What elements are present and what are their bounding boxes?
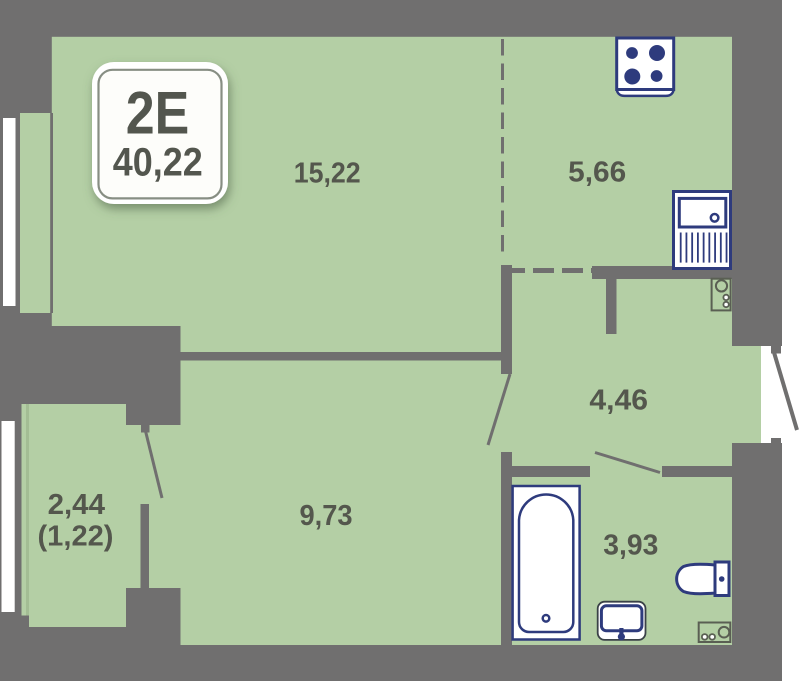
svg-text:40,22: 40,22 xyxy=(113,141,203,185)
svg-text:5,66: 5,66 xyxy=(568,157,626,189)
svg-text:2E: 2E xyxy=(126,80,190,147)
svg-text:15,22: 15,22 xyxy=(294,158,361,190)
svg-text:3,93: 3,93 xyxy=(603,530,658,562)
svg-text:4,46: 4,46 xyxy=(589,385,648,417)
svg-text:(1,22): (1,22) xyxy=(38,521,114,553)
svg-text:9,73: 9,73 xyxy=(300,500,353,532)
svg-text:2,44: 2,44 xyxy=(48,489,105,521)
